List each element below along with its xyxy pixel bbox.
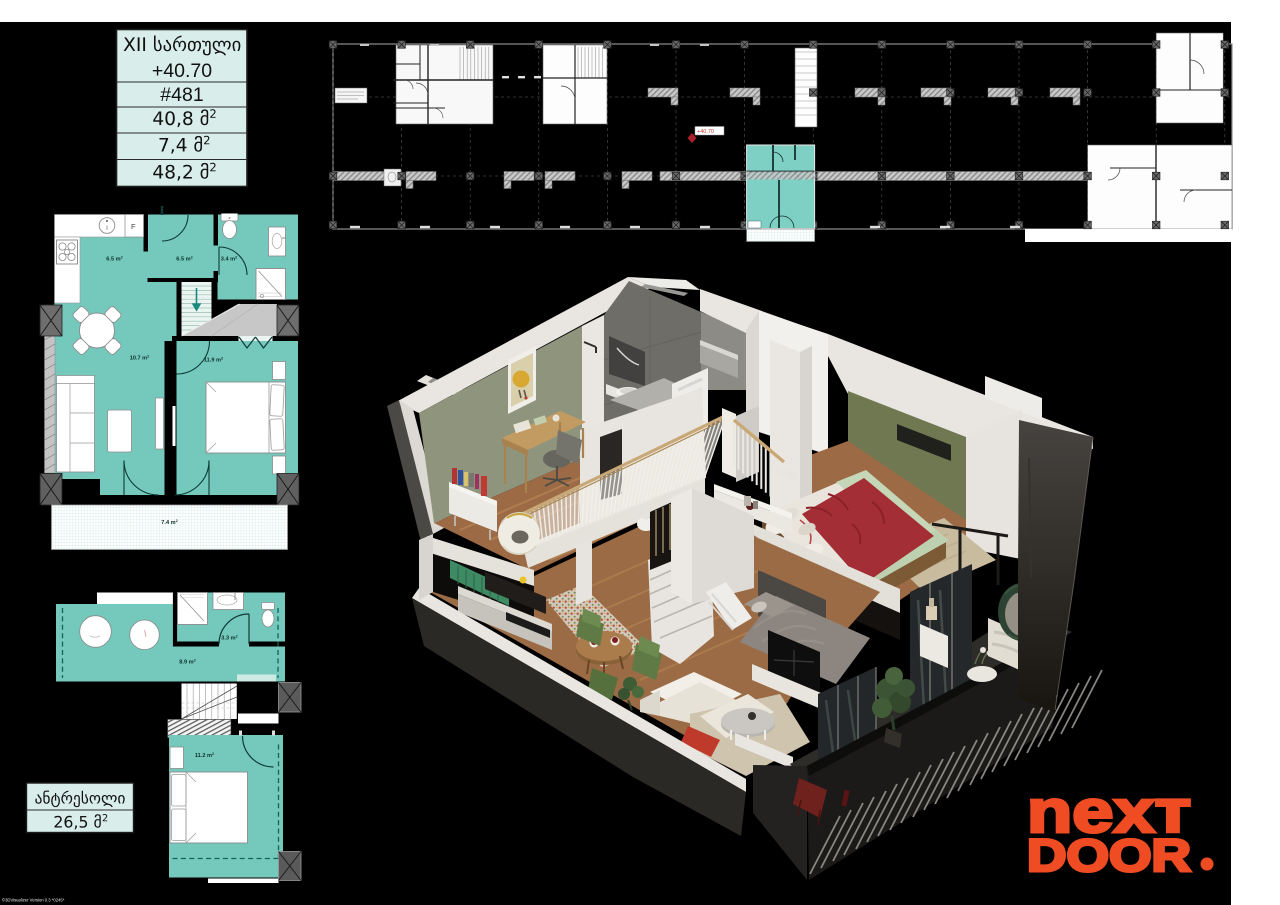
- svg-text:6.5 m2: 6.5 m2: [106, 256, 122, 263]
- svg-text:3.3 m2: 3.3 m2: [221, 635, 237, 642]
- svg-text:10.7 m2: 10.7 m2: [130, 355, 150, 362]
- svg-text:DOOR: DOOR: [1027, 830, 1191, 881]
- svg-text:11.9 m2: 11.9 m2: [204, 357, 223, 364]
- svg-text:8.9 m2: 8.9 m2: [179, 659, 195, 666]
- svg-text:11.2 m2: 11.2 m2: [195, 752, 214, 759]
- svg-text:©3DVisualizer Version 0.3 *024: ©3DVisualizer Version 0.3 *0245*: [2, 898, 65, 903]
- svg-text:F: F: [131, 222, 136, 231]
- svg-text:+40.70: +40.70: [152, 60, 212, 82]
- svg-text:#481: #481: [160, 84, 203, 106]
- svg-text:6.5 m2: 6.5 m2: [176, 256, 192, 263]
- svg-text:+40.70: +40.70: [697, 129, 714, 135]
- svg-text:3.4 m2: 3.4 m2: [221, 256, 237, 263]
- svg-text:7.4 m2: 7.4 m2: [161, 519, 177, 526]
